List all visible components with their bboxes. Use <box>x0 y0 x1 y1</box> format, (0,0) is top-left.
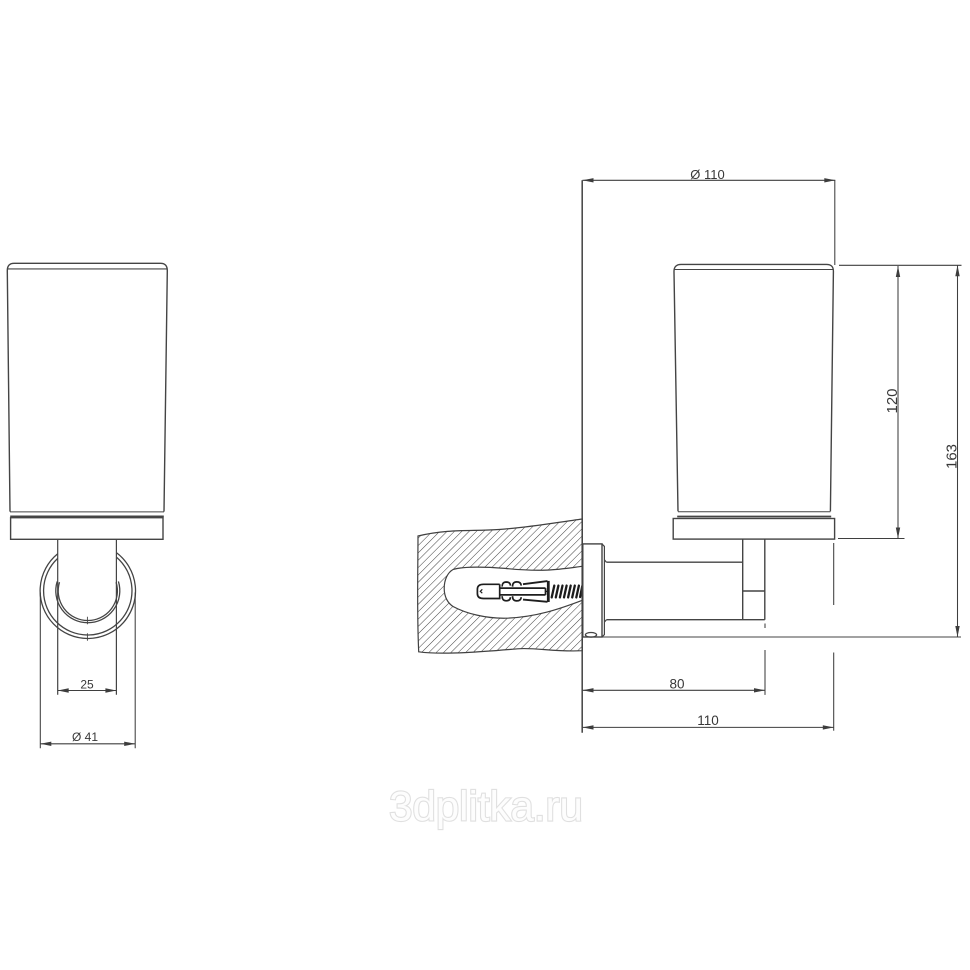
svg-text:Ø 110: Ø 110 <box>690 167 724 182</box>
svg-text:3dplitka.ru: 3dplitka.ru <box>389 783 583 830</box>
svg-text:Ø 41: Ø 41 <box>72 730 98 744</box>
svg-text:120: 120 <box>884 388 901 413</box>
svg-text:80: 80 <box>669 676 684 691</box>
svg-text:163: 163 <box>944 444 961 469</box>
svg-text:25: 25 <box>80 678 94 692</box>
svg-text:110: 110 <box>697 713 719 728</box>
